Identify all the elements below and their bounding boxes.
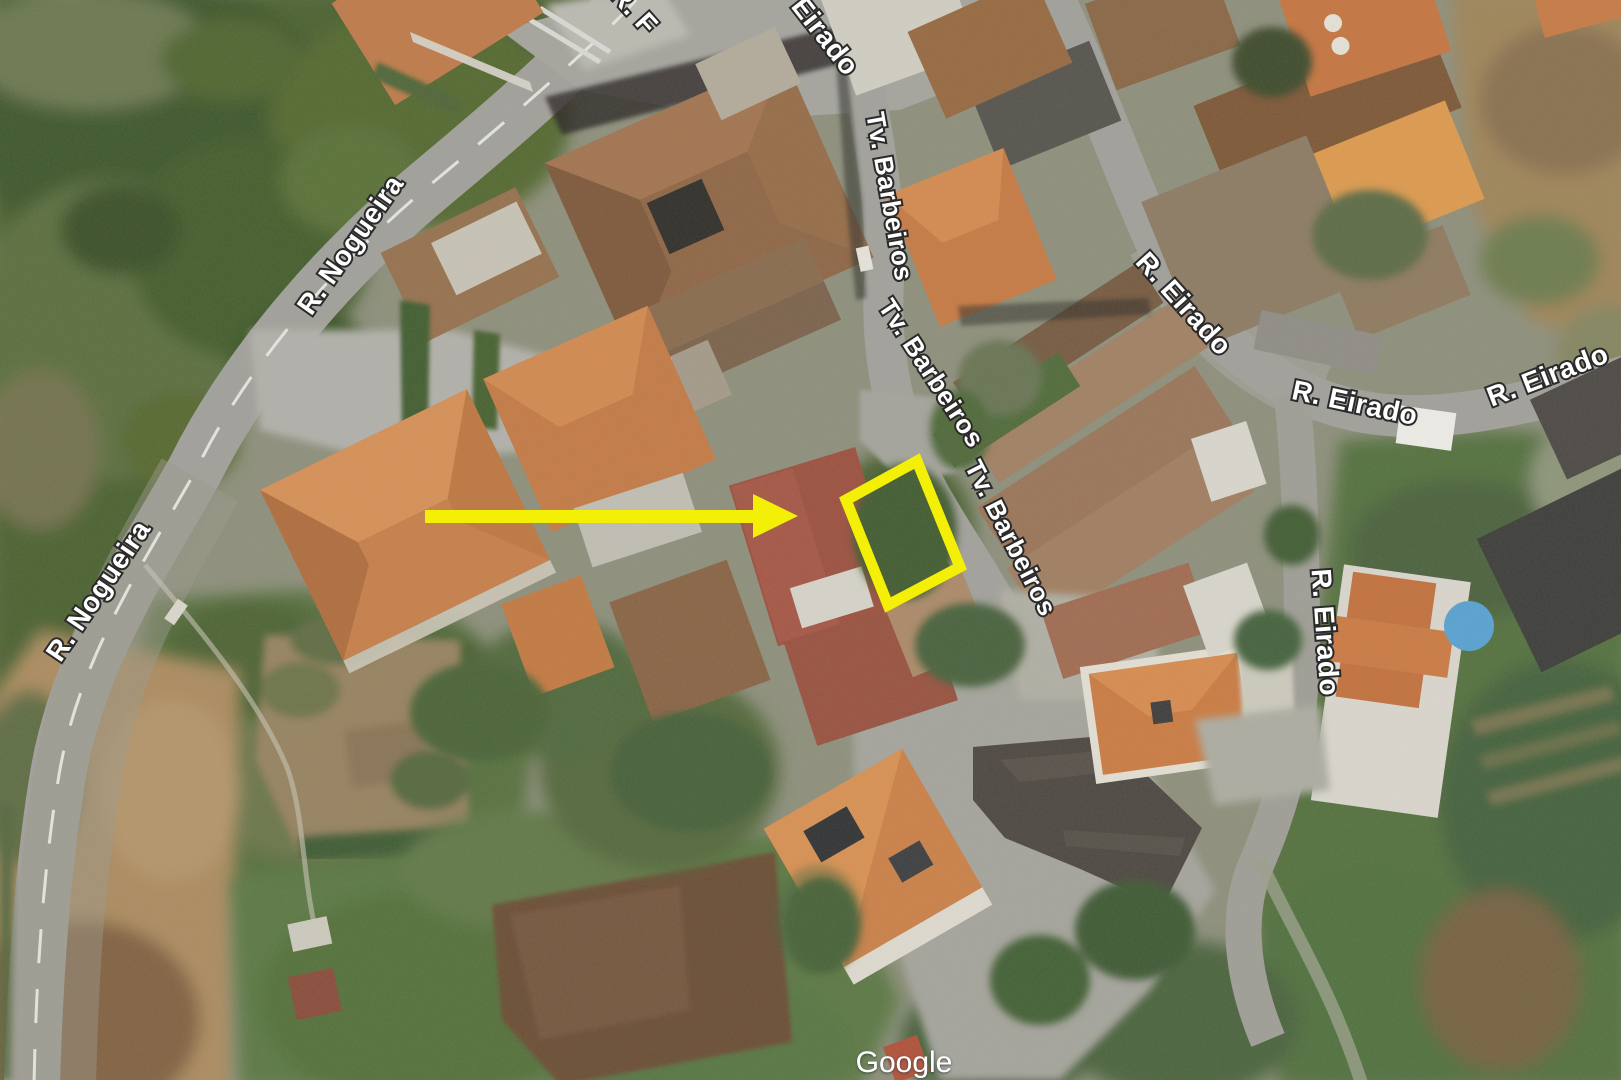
svg-text:Google: Google [856, 1046, 953, 1079]
